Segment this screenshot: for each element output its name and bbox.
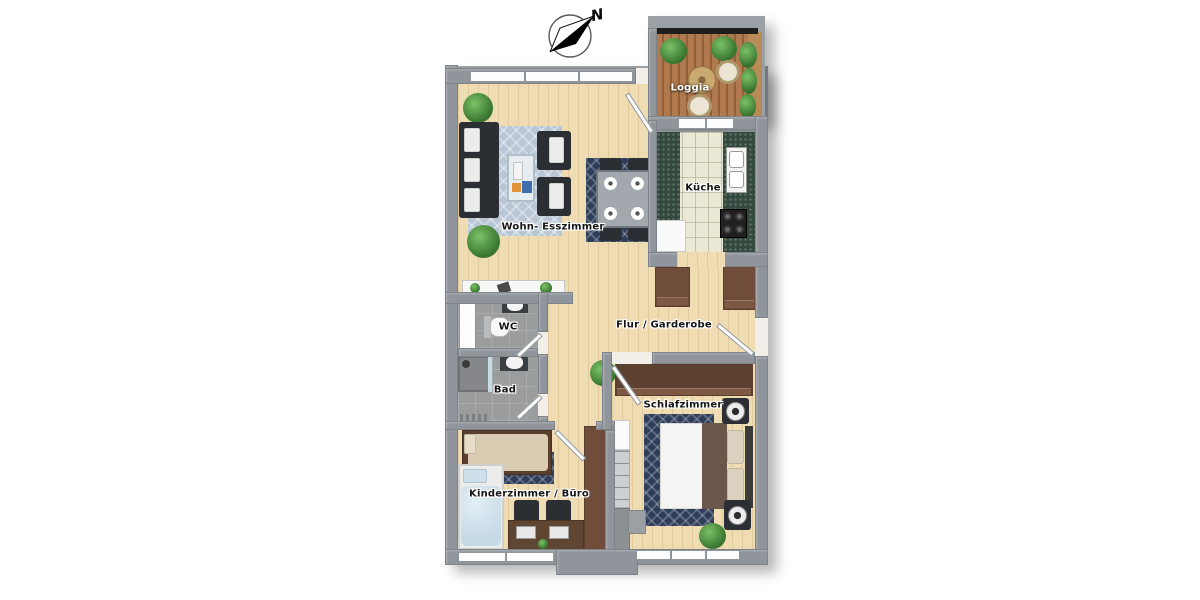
dining-chair-4 — [628, 227, 650, 241]
wall-kids-bedroom — [605, 430, 615, 550]
wall-living-wc — [445, 292, 573, 304]
floorplan-canvas: Loggia Küche Wohn- Esszimmer WC Bad Flur… — [0, 0, 1200, 600]
bedroom-bench — [628, 510, 646, 534]
loggia-plant-right — [711, 36, 737, 61]
sink-basin-2 — [729, 171, 744, 188]
sofa-pillow-3 — [464, 188, 480, 212]
plate-3 — [604, 207, 617, 220]
plate-1 — [604, 177, 617, 190]
coffee-table-tray — [513, 162, 523, 180]
room-label-hall: Flur / Garderobe — [616, 320, 712, 331]
burner-1 — [723, 212, 732, 221]
wall-bottom-bump — [556, 549, 638, 575]
burner-2 — [735, 212, 744, 221]
plate-4 — [631, 207, 644, 220]
desk-chair-1 — [514, 500, 539, 522]
plate-2 — [631, 177, 644, 190]
wall-left — [445, 65, 458, 565]
loggia-plant-left — [660, 38, 687, 64]
bedroom-plant — [699, 523, 726, 549]
wall-kids-top — [445, 421, 555, 430]
kids-bed-top-pillow — [464, 434, 476, 454]
coffee-table-book-orange — [512, 183, 521, 192]
wc-window — [459, 299, 476, 353]
kids-bed-left-pillow — [463, 469, 487, 483]
armchair-2-cushion — [549, 183, 564, 209]
wall-right-lower — [755, 356, 768, 565]
kitchen-counter-left — [656, 132, 680, 220]
loggia-climbing-plant-bottom — [739, 94, 756, 118]
wall-bedroom-top — [652, 352, 755, 364]
sink-basin-1 — [729, 151, 744, 168]
entrance-opening — [755, 318, 768, 356]
room-label-bath: Bad — [494, 385, 516, 396]
nightstand-top-lamp — [726, 402, 745, 421]
bedroom-window-divider-2 — [705, 550, 707, 560]
bath-sink — [506, 356, 523, 369]
loggia-climbing-plant-top — [739, 42, 757, 68]
bed-pillow-1 — [727, 430, 744, 464]
burner-4 — [735, 225, 744, 234]
bedroom-door-opening — [612, 352, 652, 364]
hall-wardrobe-right-front — [725, 300, 754, 308]
room-label-living: Wohn- Esszimmer — [502, 222, 605, 233]
living-window — [470, 71, 633, 82]
bed-throw-brown — [702, 423, 727, 509]
bed-pillow-2 — [727, 468, 744, 502]
living-window-divider-1 — [524, 71, 526, 82]
living-plant-top — [463, 93, 493, 123]
room-label-wc: WC — [499, 322, 518, 333]
shower-drain — [462, 360, 470, 368]
wall-wc-right-upper — [538, 292, 548, 332]
loggia-railing — [650, 28, 758, 34]
bedroom-window-divider-1 — [670, 550, 672, 560]
bed-duvet-white — [660, 423, 704, 509]
loggia-climbing-plant-mid — [741, 68, 757, 94]
bedroom-wardrobe-front — [617, 388, 751, 395]
kids-window-divider — [505, 552, 507, 562]
wall-corridor-bedroom — [602, 352, 612, 430]
bed-headboard — [745, 426, 753, 508]
loggia-chair-right — [716, 60, 740, 84]
bedroom-window — [636, 550, 740, 560]
coffee-table-book-blue — [522, 181, 532, 193]
kitchen-window-divider — [705, 118, 707, 129]
kitchen-appliance — [656, 220, 686, 252]
desk-workstation-2 — [549, 526, 569, 539]
wall-loggia-left — [648, 28, 657, 120]
room-label-bedroom: Schlafzimmer — [644, 400, 723, 411]
desk-chair-2 — [546, 500, 571, 522]
desk-plant — [538, 539, 548, 549]
burner-3 — [723, 225, 732, 234]
nightstand-bottom-lamp — [728, 506, 747, 525]
shower-glass — [488, 356, 492, 392]
sofa-pillow-2 — [464, 158, 480, 182]
room-label-loggia: Loggia — [671, 83, 710, 94]
hall-wardrobe-left-front — [657, 297, 688, 305]
armchair-1-cushion — [549, 137, 564, 163]
loggia-door-opening — [636, 68, 648, 84]
kitchen-door-opening — [677, 252, 725, 267]
wall-bath-right-upper — [538, 354, 548, 394]
wall-right-upper — [755, 116, 768, 318]
desk-workstation-1 — [516, 526, 536, 539]
loggia-chair-bottom — [687, 94, 712, 118]
living-window-divider-2 — [578, 71, 580, 82]
room-label-kids: Kinderzimmer / Büro — [469, 489, 589, 500]
living-plant-bottom — [467, 225, 500, 258]
room-label-kitchen: Küche — [685, 183, 721, 194]
wall-kitchen-left — [648, 120, 657, 267]
sofa-pillow-1 — [464, 128, 480, 152]
